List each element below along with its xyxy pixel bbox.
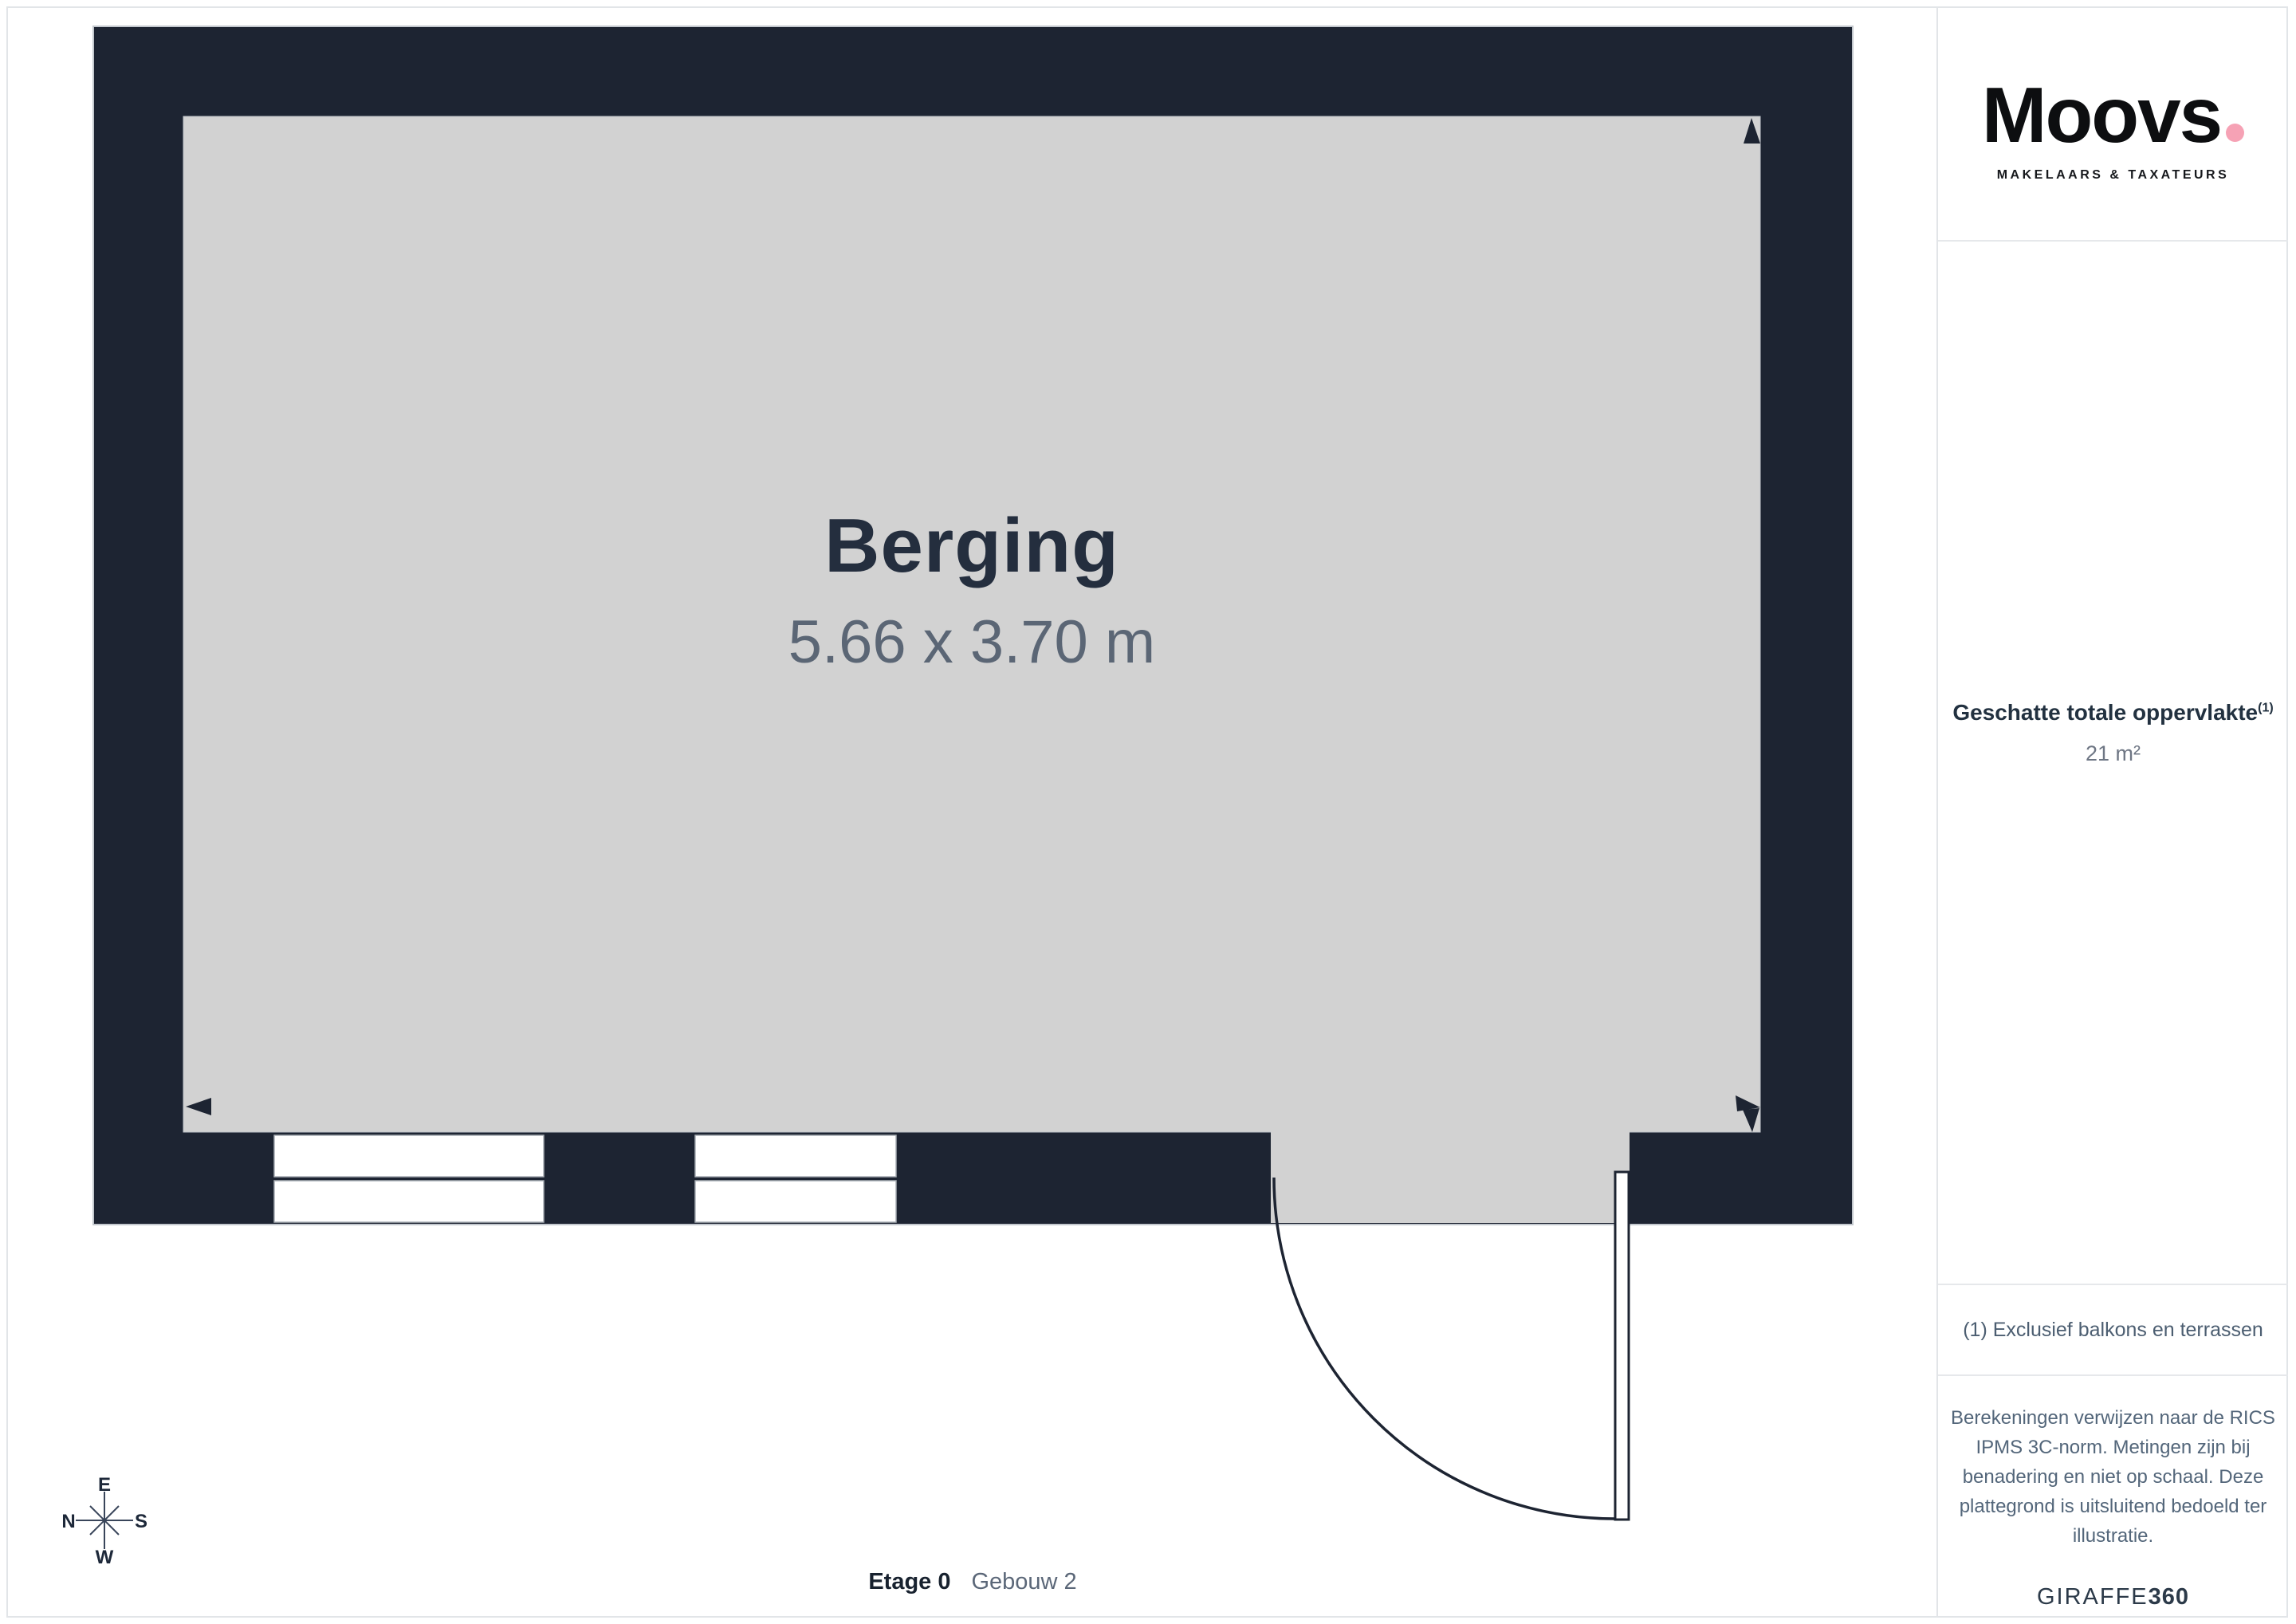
door-swing-arc: [1274, 1178, 1615, 1519]
disclaimer-text: Berekeningen verwijzen naar de RICS IPMS…: [1948, 1403, 2278, 1551]
giraffe360-credit: GIRAFFE360: [1938, 1584, 2288, 1610]
compass-north-label: N: [61, 1511, 75, 1532]
total-area-block: Geschatte totale oppervlakte(1) 21 m²: [1938, 700, 2288, 766]
logo-section-divider: [1938, 240, 2288, 242]
total-area-value: 21 m²: [1938, 741, 2288, 766]
footnote-bottom-divider: [1938, 1374, 2288, 1376]
room-label: Berging 5.66 x 3.70 m: [183, 502, 1760, 677]
compass-west-label: W: [96, 1547, 114, 1568]
compass-rose: [76, 1492, 133, 1549]
room-dimensions: 5.66 x 3.70 m: [183, 608, 1760, 677]
brand-logo: Moovs MAKELAARS & TAXATEURS: [1938, 70, 2288, 183]
footnote-section: (1) Exclusief balkons en terrassen: [1938, 1285, 2288, 1374]
building-label: Gebouw 2: [971, 1569, 1076, 1595]
floorplan-page: E N S W Berging 5.66 x 3.70 m Etage 0 Ge…: [0, 0, 2296, 1624]
brand-tagline: MAKELAARS & TAXATEURS: [1938, 168, 2288, 183]
compass-east-label: E: [98, 1474, 111, 1496]
floorplan-drawing: E N S W: [0, 0, 2296, 1624]
total-area-heading: Geschatte totale oppervlakte(1): [1938, 700, 2288, 725]
giraffe360-brand: GIRAFFE: [2037, 1584, 2149, 1610]
room-name: Berging: [183, 502, 1760, 590]
total-area-heading-text: Geschatte totale oppervlakte: [1952, 700, 2258, 725]
disclaimer-section: Berekeningen verwijzen naar de RICS IPMS…: [1938, 1403, 2288, 1610]
footnote-text: (1) Exclusief balkons en terrassen: [1963, 1319, 2263, 1342]
floor-label: Etage 0: [868, 1569, 950, 1595]
brand-dot-icon: [2226, 124, 2244, 142]
compass-south-label: S: [135, 1511, 147, 1532]
plan-footer: Etage 0 Gebouw 2: [0, 1569, 1945, 1595]
giraffe360-suffix: 360: [2149, 1584, 2189, 1610]
brand-name: Moovs: [1982, 71, 2221, 159]
doorway-opening: [1271, 1131, 1630, 1223]
door-leaf: [1615, 1172, 1629, 1520]
total-area-heading-footnote-ref: (1): [2258, 702, 2274, 715]
